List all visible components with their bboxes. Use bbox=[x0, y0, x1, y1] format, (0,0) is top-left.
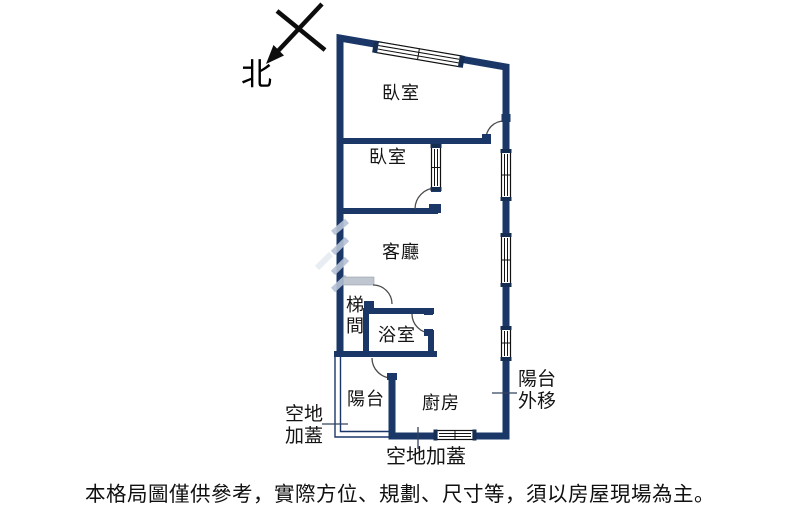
room-label-balcony: 陽台 bbox=[347, 390, 385, 408]
annotation-open-land-left: 空地加蓋 bbox=[285, 404, 327, 447]
room-label-kitchen: 廚房 bbox=[422, 394, 460, 412]
compass-north-arrow-icon bbox=[266, 4, 325, 64]
bottom-wall-window bbox=[434, 430, 477, 441]
room-label-bathroom: 浴室 bbox=[378, 326, 416, 344]
exterior-walls bbox=[340, 38, 506, 436]
room-label-bedroom-1: 臥室 bbox=[382, 84, 420, 102]
room-label-living-room: 客廳 bbox=[382, 243, 420, 261]
right-wall-window-2 bbox=[501, 233, 512, 287]
room-label-bedroom-2: 臥室 bbox=[369, 148, 407, 166]
bedroom2-partition-window bbox=[431, 144, 442, 191]
annotation-balcony-extended: 陽台外移 bbox=[518, 369, 560, 412]
right-wall-window-3 bbox=[501, 326, 512, 361]
stair-landing-threshold bbox=[343, 277, 374, 285]
floor-plan-page: 北 臥室 臥室 客廳 梯間 浴室 陽台 廚房 空地加蓋 空地加蓋 陽台外移 本格… bbox=[0, 0, 800, 512]
right-wall-window-1 bbox=[501, 149, 512, 201]
annotation-open-land-bottom: 空地加蓋 bbox=[386, 447, 476, 469]
top-wall-window bbox=[372, 41, 465, 68]
disclaimer-text: 本格局圖僅供參考，實際方位、規劃、尺寸等，須以房屋現場為主。 bbox=[0, 477, 800, 507]
compass-north-label: 北 bbox=[241, 59, 272, 90]
stairwell-door-arc bbox=[373, 285, 392, 304]
room-label-stairwell: 梯間 bbox=[346, 295, 365, 337]
